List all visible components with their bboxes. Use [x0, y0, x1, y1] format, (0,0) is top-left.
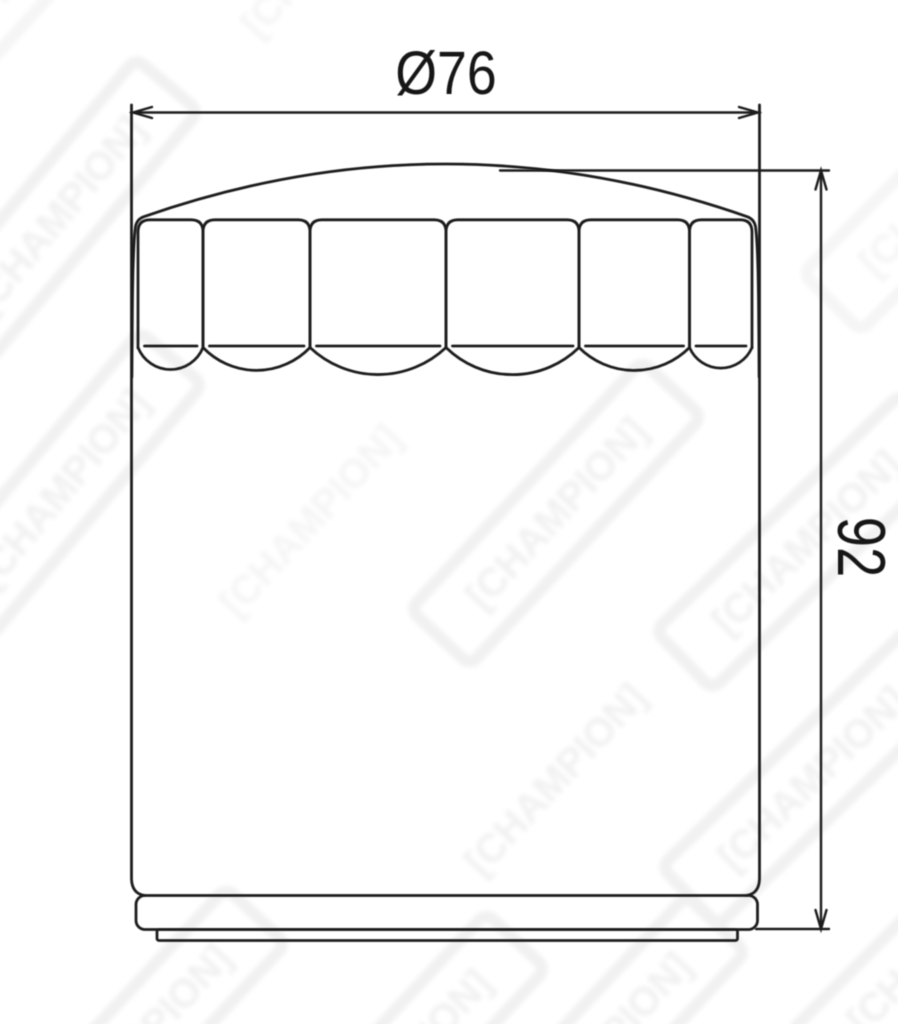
- svg-text:Ø76: Ø76: [395, 40, 496, 108]
- svg-text:92: 92: [823, 517, 898, 578]
